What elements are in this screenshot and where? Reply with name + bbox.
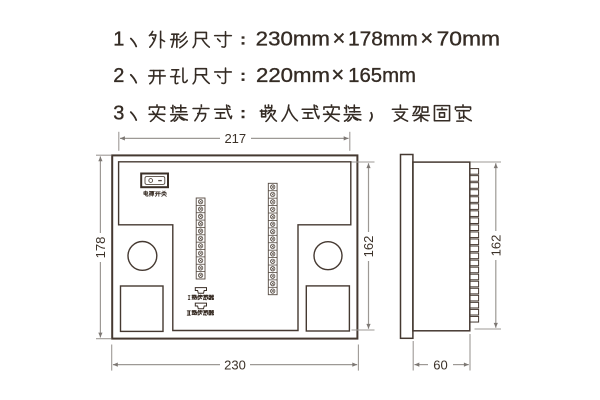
svg-text:70mm: 70mm — [437, 29, 501, 51]
svg-text:220mm: 220mm — [256, 65, 330, 87]
svg-text:×: × — [420, 26, 433, 51]
svg-text:165mm: 165mm — [348, 65, 416, 87]
svg-text:178mm: 178mm — [348, 29, 418, 51]
svg-text:60: 60 — [433, 357, 447, 372]
svg-text:1: 1 — [113, 29, 124, 51]
svg-text:×: × — [332, 26, 345, 51]
svg-text:162: 162 — [361, 236, 376, 258]
svg-text:3: 3 — [113, 102, 124, 124]
svg-text:217: 217 — [224, 131, 246, 146]
svg-text:230mm: 230mm — [256, 29, 330, 51]
svg-text:178: 178 — [93, 237, 108, 259]
svg-text:×: × — [331, 62, 344, 87]
svg-text:2: 2 — [113, 65, 124, 87]
svg-text:162: 162 — [488, 235, 503, 257]
svg-text:230: 230 — [224, 357, 246, 372]
